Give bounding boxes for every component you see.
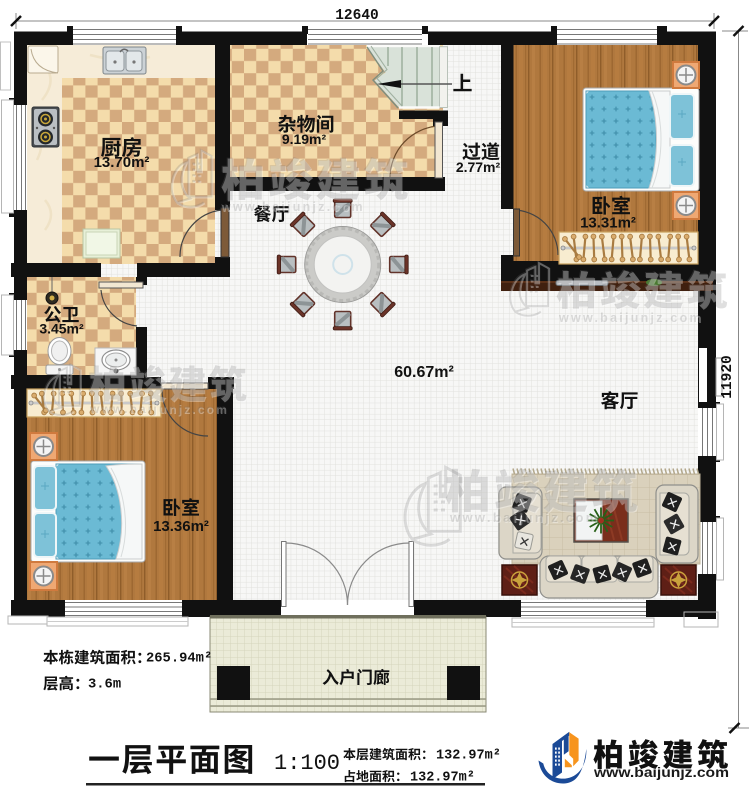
svg-text:2.77m²: 2.77m² xyxy=(456,159,501,175)
svg-text:13.36m²: 13.36m² xyxy=(153,518,209,535)
svg-text:265.94m²: 265.94m² xyxy=(146,652,212,667)
svg-text:60.67m²: 60.67m² xyxy=(394,364,454,381)
svg-text:13.31m²: 13.31m² xyxy=(580,215,636,232)
svg-text:www.baijunjz.com: www.baijunjz.com xyxy=(593,764,729,780)
svg-text:11920: 11920 xyxy=(720,355,736,399)
svg-text:13.70m²: 13.70m² xyxy=(94,154,150,171)
svg-text:12640: 12640 xyxy=(335,8,379,24)
svg-text:www.baijunjz.com: www.baijunjz.com xyxy=(449,510,600,525)
svg-text:3.45m²: 3.45m² xyxy=(39,321,84,337)
svg-text:1:100: 1:100 xyxy=(274,751,340,776)
svg-text:www.baijunjz.com: www.baijunjz.com xyxy=(558,311,703,325)
svg-text:www.baijunjz.com: www.baijunjz.com xyxy=(89,402,228,416)
svg-text:9.19m²: 9.19m² xyxy=(282,131,327,147)
svg-text:www.baijunjz.com: www.baijunjz.com xyxy=(220,200,365,214)
svg-text:3.6m: 3.6m xyxy=(88,678,121,693)
svg-text:132.97m²: 132.97m² xyxy=(436,749,501,764)
